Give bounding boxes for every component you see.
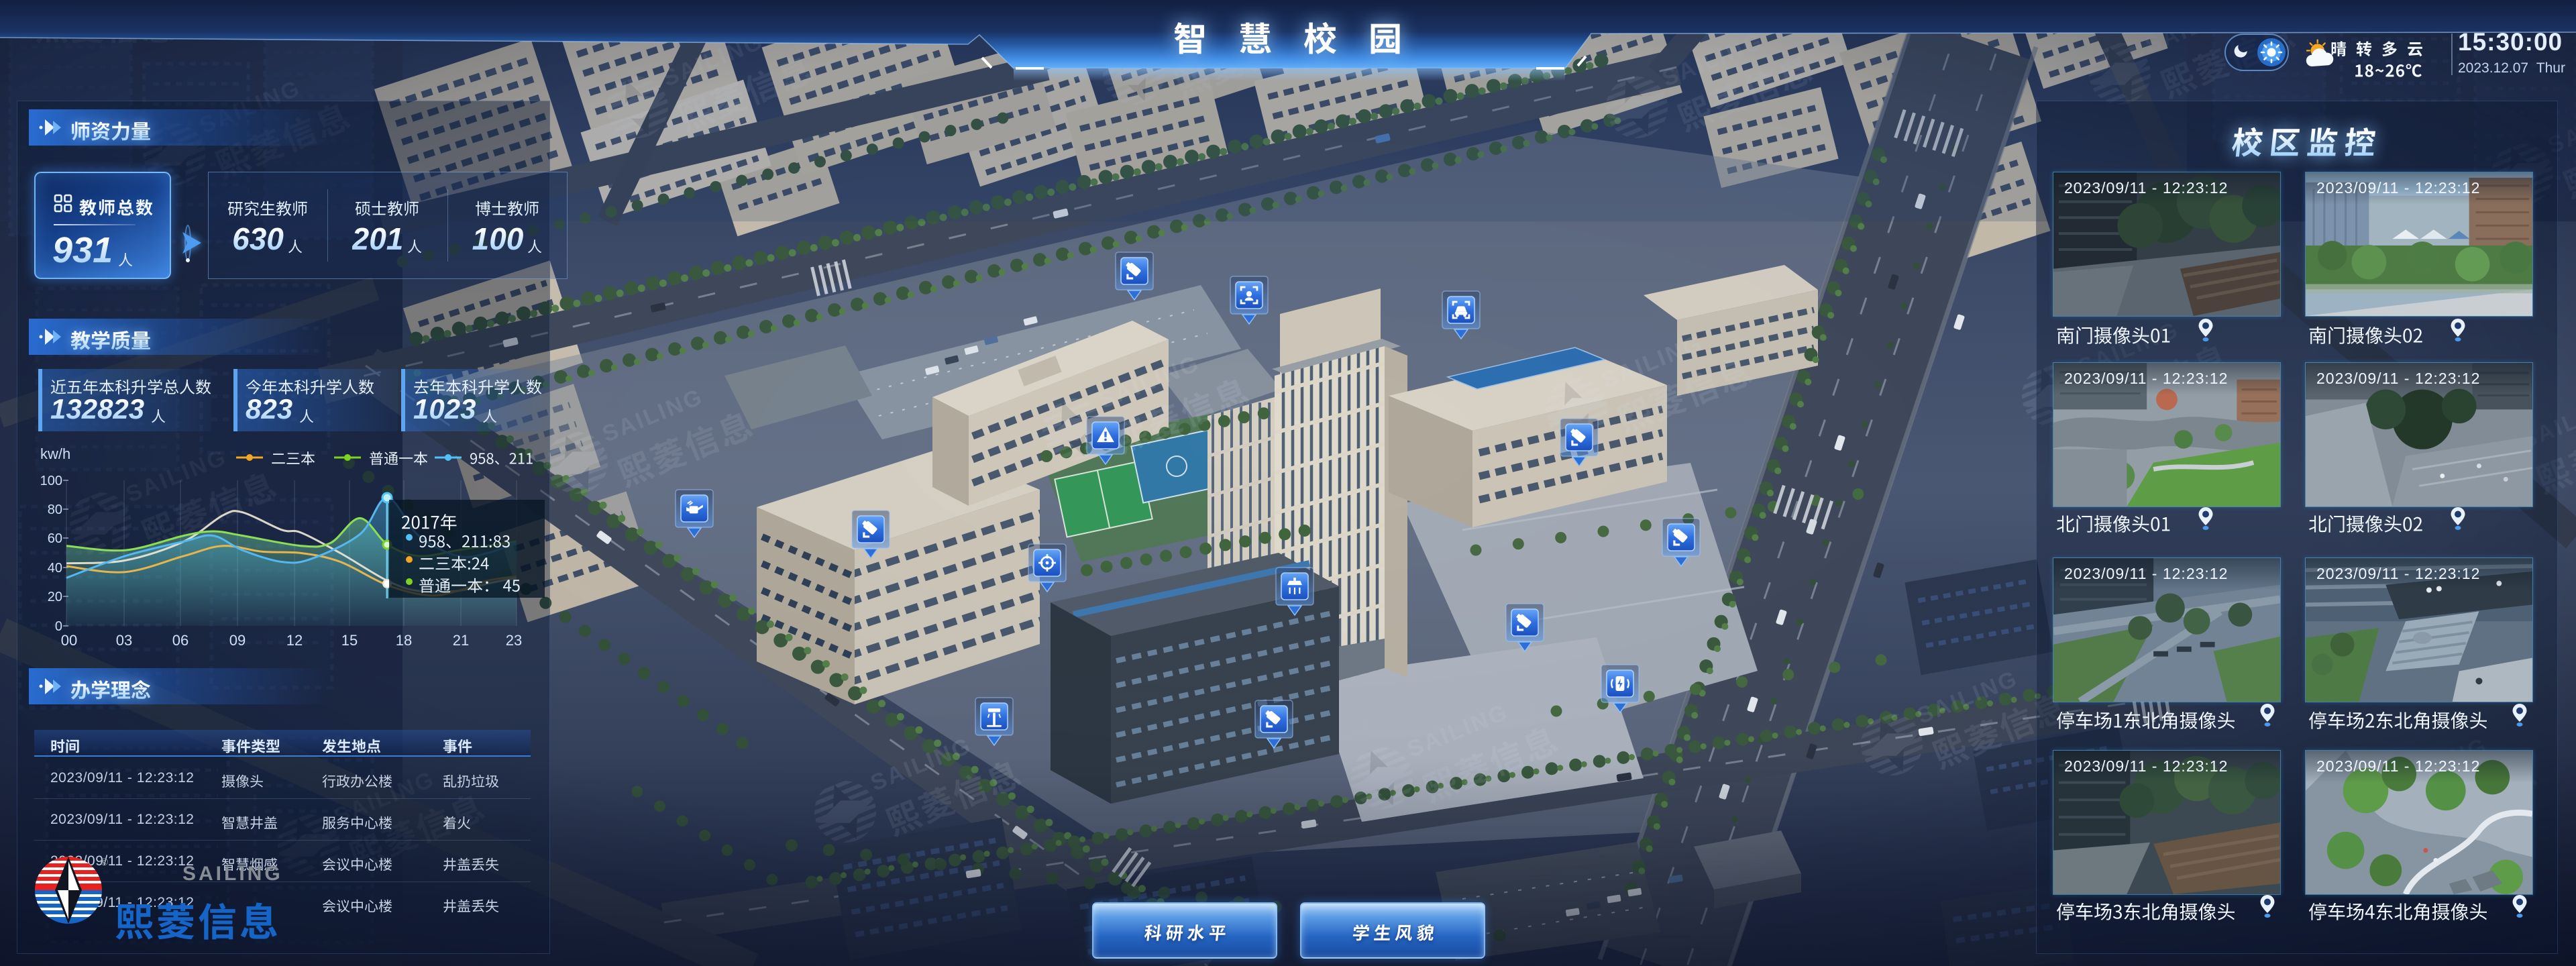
svg-text:20: 20 — [48, 590, 62, 604]
svg-text:SAILING: SAILING — [182, 863, 283, 885]
svg-text:23: 23 — [506, 632, 522, 649]
svg-text:15: 15 — [341, 632, 358, 649]
svg-text:12: 12 — [286, 632, 303, 649]
svg-text:60: 60 — [48, 531, 62, 546]
svg-text:00: 00 — [61, 632, 77, 649]
svg-text:®: ® — [101, 857, 108, 868]
svg-text:80: 80 — [48, 502, 62, 517]
svg-text:21: 21 — [453, 632, 469, 649]
svg-text:40: 40 — [48, 561, 62, 576]
svg-text:100: 100 — [40, 474, 62, 488]
svg-text:09: 09 — [229, 632, 246, 649]
svg-text:18: 18 — [396, 632, 412, 649]
svg-text:03: 03 — [116, 632, 132, 649]
svg-text:06: 06 — [172, 632, 189, 649]
